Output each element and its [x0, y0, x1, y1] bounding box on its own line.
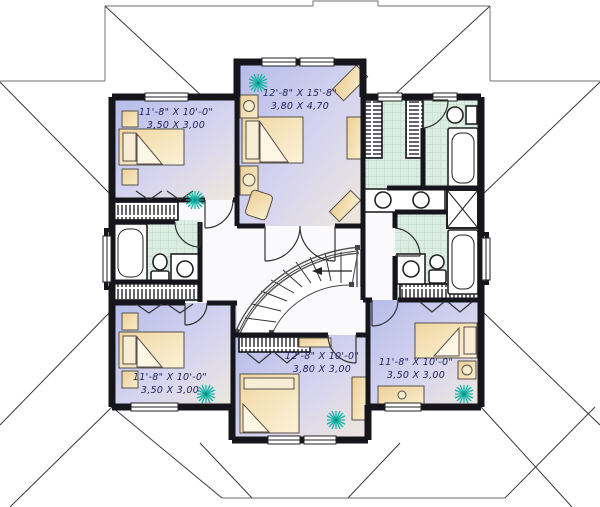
nightstand-top-left-2	[122, 169, 138, 185]
desk-lamp-bottom-right	[398, 391, 406, 399]
window-bottom-right-bedroom	[385, 403, 421, 411]
window-top-left-bedroom	[145, 93, 188, 101]
walkin-shelf-left	[365, 100, 382, 158]
lamp-master-2	[243, 174, 255, 186]
pillow-bottom-left	[123, 336, 136, 364]
lamp-master-1	[244, 101, 255, 112]
vanity-sink-2	[413, 192, 429, 208]
plant-icon	[455, 385, 473, 403]
label-master-metric: 3,80 X 4,70	[271, 101, 329, 112]
label-master-imperial: 12'-8" X 15'-8"	[263, 88, 337, 99]
dresser-bottom-center	[352, 377, 366, 420]
label-bottom-left-metric: 3,50 X 3,00	[141, 385, 199, 396]
sink-left	[177, 261, 193, 277]
vanity-sink-1	[375, 192, 391, 208]
label-bottom-center-metric: 3,80 X 3,00	[293, 364, 351, 375]
shelf-bottom-center	[299, 338, 331, 347]
toilet-right	[430, 255, 444, 269]
window-master-1	[262, 58, 296, 66]
pillow-top-left	[123, 133, 136, 161]
label-top-left-metric: 3,50 X 3,00	[147, 120, 205, 131]
mirror-top-right	[466, 106, 477, 124]
nightstand-bottom-left-1	[122, 313, 138, 330]
window-bottom-center-2	[304, 436, 336, 444]
floor-plan-canvas: 12'-8" X 15'-8" 3,80 X 4,70 11'-8" X 10'…	[0, 0, 600, 507]
label-bottom-right-metric: 3,50 X 3,00	[387, 370, 445, 381]
label-bottom-center-imperial: 12'-8" X 10'-0"	[285, 351, 359, 362]
label-top-left-imperial: 11'-8" X 10'-0"	[139, 107, 213, 118]
pillow-master	[246, 121, 259, 159]
label-bottom-left-imperial: 11'-8" X 10'-0"	[133, 372, 207, 383]
window-bath-right-bay	[482, 238, 490, 280]
plant-icon	[186, 191, 204, 209]
nightstand-top-left-1	[122, 111, 138, 127]
window-bath-left-bay	[103, 236, 111, 282]
walkin-shelf-right	[406, 100, 423, 158]
dresser-master	[347, 117, 361, 159]
plant-icon	[327, 411, 345, 429]
sink-top-right	[447, 107, 463, 123]
window-bottom-left-bedroom	[131, 403, 178, 411]
window-walkin	[378, 93, 402, 101]
pillow-bottom-center	[244, 378, 294, 389]
window-master-2	[300, 58, 334, 66]
toilet-left	[153, 254, 167, 270]
closet-top-left	[114, 202, 178, 220]
lamp-bottom-right	[462, 365, 472, 375]
closet-mid-left	[114, 283, 200, 300]
plant-icon	[197, 385, 215, 403]
sink-right	[403, 261, 419, 277]
label-bottom-right-imperial: 11'-8" X 10'-0"	[379, 357, 453, 368]
window-bottom-center-1	[268, 436, 300, 444]
pillow-bottom-right	[464, 327, 476, 354]
